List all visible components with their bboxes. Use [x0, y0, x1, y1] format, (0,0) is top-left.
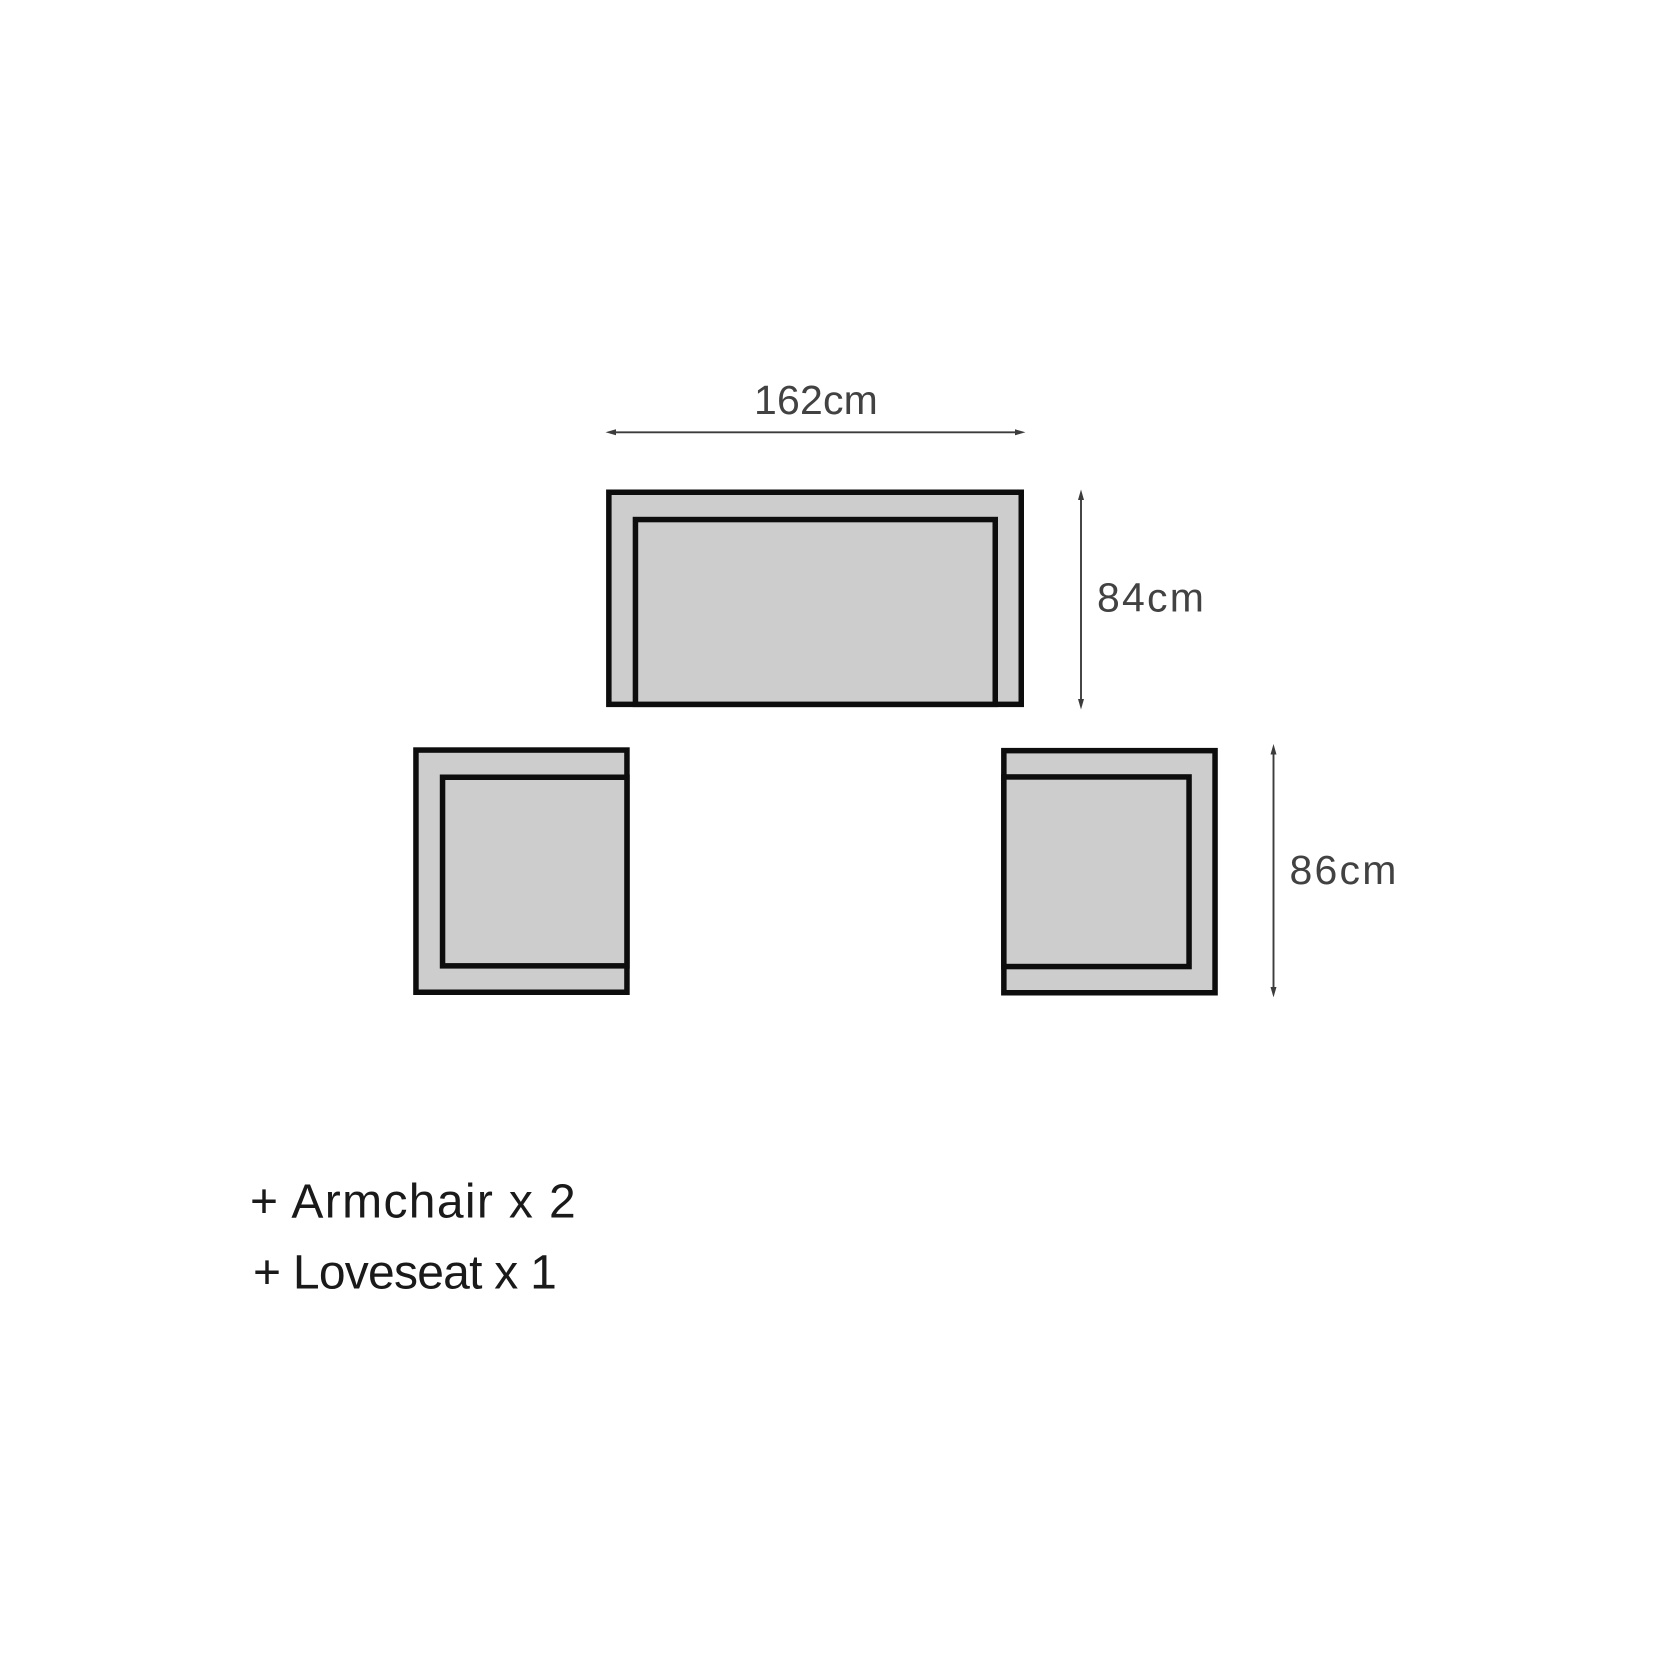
svg-text:+ Loveseat x 1: + Loveseat x 1	[253, 1247, 556, 1300]
svg-text:86cm: 86cm	[1290, 847, 1399, 893]
svg-text:84cm: 84cm	[1097, 575, 1206, 621]
svg-text:162cm: 162cm	[754, 377, 878, 423]
svg-text:+ Armchair x 2: + Armchair x 2	[250, 1176, 577, 1229]
